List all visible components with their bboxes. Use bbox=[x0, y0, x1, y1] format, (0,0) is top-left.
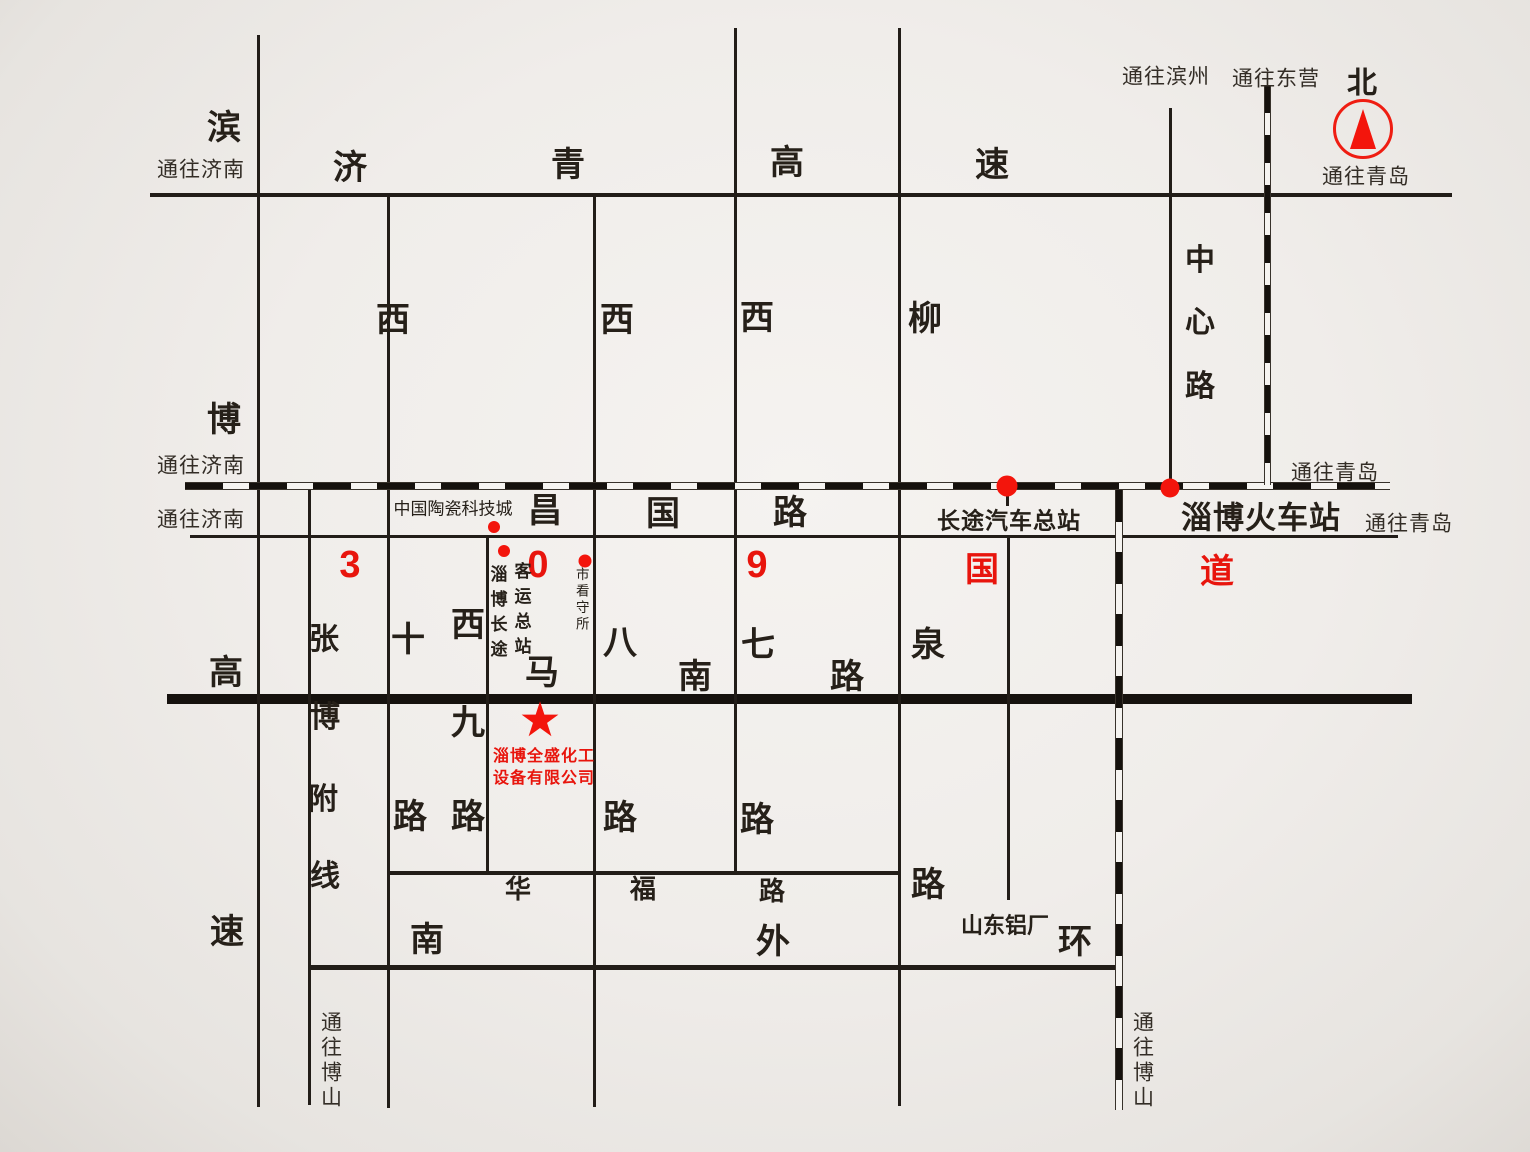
west10-char-xi: 西 bbox=[376, 303, 410, 337]
detention-center-label: 市看守所 bbox=[574, 567, 588, 633]
jiqing-expressway-line bbox=[150, 193, 1452, 197]
west-7th-road-line bbox=[734, 28, 737, 873]
g309-char-guo: 国 bbox=[965, 553, 999, 587]
changguo-char-lu: 路 bbox=[773, 496, 807, 530]
to-jinan-railway: 通往济南 bbox=[157, 456, 245, 477]
ring-char-huan: 环 bbox=[1058, 925, 1092, 959]
jiqing-char-gao: 高 bbox=[770, 146, 804, 180]
huafu-char-hua: 华 bbox=[505, 876, 531, 902]
changguo-char-guo: 国 bbox=[646, 497, 680, 531]
huafu-char-fu: 福 bbox=[630, 876, 656, 902]
detention-center-dot bbox=[579, 555, 592, 568]
ring-char-wai: 外 bbox=[756, 925, 790, 959]
liuquan-char-quan: 泉 bbox=[911, 628, 945, 662]
g309-char-9: 9 bbox=[746, 546, 767, 584]
jiqing-char-ji: 济 bbox=[333, 151, 367, 185]
bus-terminal-road-line bbox=[1007, 537, 1010, 900]
jiqing-char-su: 速 bbox=[975, 148, 1009, 182]
west9-char-xi: 西 bbox=[451, 608, 485, 642]
binbo-char-bin: 滨 bbox=[207, 111, 241, 145]
to-qingdao-compass: 通往青岛 bbox=[1322, 167, 1410, 188]
zhangbo-char-zhang: 张 bbox=[309, 625, 339, 655]
manan-char-nan: 南 bbox=[678, 660, 712, 694]
map-canvas: 济 青 高 速 滨 博 高 速 张 博 附 线 昌 国 路 3 0 9 国 道 … bbox=[0, 0, 1530, 1152]
to-jinan-changguo: 通往济南 bbox=[157, 510, 245, 531]
manan-road-line bbox=[167, 694, 1412, 704]
g309-char-0: 0 bbox=[527, 546, 548, 584]
company-star-icon: ★ bbox=[518, 697, 561, 745]
to-boshan-southwest: 通往博山 bbox=[320, 1011, 341, 1111]
compass-icon bbox=[1333, 99, 1393, 159]
g309-char-dao: 道 bbox=[1200, 555, 1234, 589]
railway-main-line bbox=[185, 482, 1390, 490]
zhangbo-char-xian: 线 bbox=[310, 862, 340, 892]
to-qingdao-changguo: 通往青岛 bbox=[1365, 514, 1453, 535]
west7-char-lu: 路 bbox=[740, 803, 774, 837]
zhongxin-char-xin: 心 bbox=[1185, 308, 1215, 338]
to-boshan-southeast: 通往博山 bbox=[1132, 1011, 1153, 1111]
west-8th-road-line bbox=[593, 195, 596, 1107]
north-label: 北 bbox=[1347, 69, 1377, 99]
west7-char-qi: 七 bbox=[741, 628, 775, 662]
liuquan-char-lu: 路 bbox=[911, 868, 945, 902]
west8-char-ba: 八 bbox=[603, 626, 637, 660]
to-qingdao-railway: 通往青岛 bbox=[1291, 463, 1379, 484]
railway-branch-south bbox=[1115, 490, 1123, 1110]
binbo-char-gao: 高 bbox=[209, 656, 243, 690]
huafu-char-lu: 路 bbox=[759, 878, 785, 904]
zhangbo-char-fu: 附 bbox=[308, 785, 338, 815]
ceramics-city-label: 中国陶瓷科技城 bbox=[394, 501, 513, 518]
railway-branch-north bbox=[1264, 85, 1271, 485]
south-outer-ring-line bbox=[310, 965, 1123, 970]
to-binzhou: 通往滨州 bbox=[1122, 67, 1210, 88]
west9-char-jiu: 九 bbox=[451, 706, 485, 740]
company-name-line1: 淄博全盛化工 bbox=[493, 749, 595, 765]
compass-needle-icon bbox=[1350, 109, 1376, 149]
zhongxin-char-lu: 路 bbox=[1185, 372, 1215, 402]
west9-char-lu: 路 bbox=[451, 800, 485, 834]
bus-terminal-label: 长途汽车总站 bbox=[937, 510, 1081, 533]
binbo-expressway-line bbox=[257, 35, 260, 1107]
zhongxin-char-zhong: 中 bbox=[1185, 246, 1215, 276]
coach-terminal-dot bbox=[498, 545, 510, 557]
coach-terminal-col1: 淄博长途 bbox=[489, 565, 506, 665]
west8-char-xi: 西 bbox=[600, 303, 634, 337]
west8-char-lu: 路 bbox=[603, 801, 637, 835]
aluminum-plant-label: 山东铝厂 bbox=[961, 915, 1049, 937]
west7-char-xi: 西 bbox=[740, 301, 774, 335]
manan-char-lu: 路 bbox=[830, 660, 864, 694]
to-jinan-top: 通往济南 bbox=[157, 160, 245, 181]
binbo-char-su: 速 bbox=[210, 915, 244, 949]
train-station-label: 淄博火车站 bbox=[1181, 503, 1341, 534]
jiqing-char-qing: 青 bbox=[551, 148, 585, 182]
zhongxin-road-line bbox=[1169, 108, 1172, 488]
to-dongying: 通往东营 bbox=[1232, 69, 1320, 90]
company-name-line2: 设备有限公司 bbox=[493, 771, 595, 787]
coach-terminal-col2: 客运总站 bbox=[513, 562, 530, 662]
west10-char-shi: 十 bbox=[391, 623, 425, 657]
zhangbo-char-bo: 博 bbox=[310, 703, 340, 733]
ring-char-nan: 南 bbox=[410, 923, 444, 957]
g309-char-3: 3 bbox=[339, 546, 360, 584]
ceramics-city-dot bbox=[488, 521, 500, 533]
west10-char-lu: 路 bbox=[393, 800, 427, 834]
liuquan-char-liu: 柳 bbox=[908, 302, 942, 336]
binbo-char-bo: 博 bbox=[207, 403, 241, 437]
liuquan-road-line bbox=[898, 28, 901, 1106]
train-station-dot bbox=[1161, 479, 1180, 498]
changguo-char-chang: 昌 bbox=[528, 494, 562, 528]
bus-terminal-station-dot bbox=[997, 476, 1018, 497]
